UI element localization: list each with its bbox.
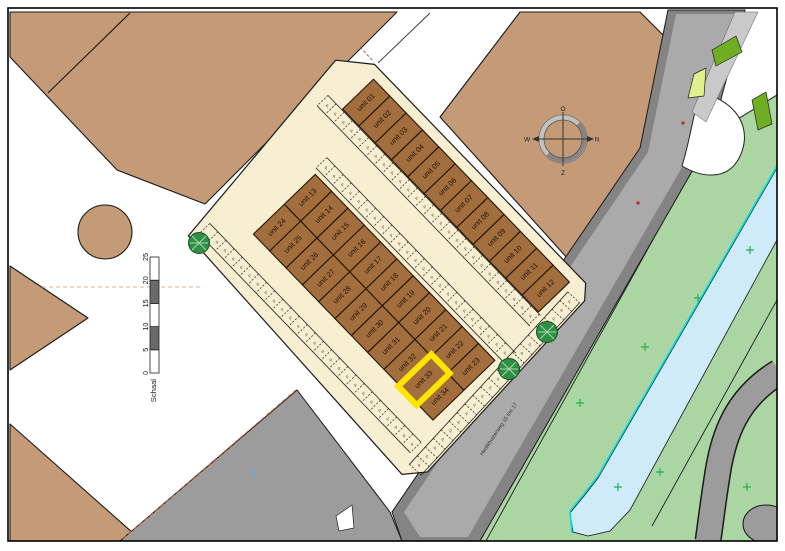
site-plan-map: Hedikhuizerweg 15 t/m 17 PPPPPPPPPPPPPPP…	[0, 0, 785, 551]
compass-letter-top: O	[560, 106, 565, 113]
tree	[189, 233, 210, 254]
scale-tick-label: 25	[141, 253, 150, 261]
scale-bar-segment	[150, 303, 159, 326]
scale-tick-label: 20	[141, 276, 150, 284]
site-plan-page: Hedikhuizerweg 15 t/m 17 PPPPPPPPPPPPPPP…	[0, 0, 785, 551]
tree	[537, 322, 558, 343]
scale-bar-label: Schaal	[149, 379, 158, 403]
scale-bar-segment	[150, 350, 159, 373]
compass-letter-left: W	[524, 136, 531, 143]
compass-letter-bottom: Z	[561, 170, 565, 177]
scale-tick-label: 15	[141, 299, 150, 307]
red-survey-dot	[636, 201, 639, 204]
compass-letter-right: N	[595, 136, 600, 143]
scale-tick-label: 5	[141, 348, 150, 352]
scale-tick-label: 0	[141, 371, 150, 375]
scale-bar-segment	[150, 257, 159, 280]
scale-bar-segment	[150, 280, 159, 303]
red-survey-dot	[681, 121, 684, 124]
silo-tank	[78, 205, 132, 259]
scale-bar-segment	[150, 327, 159, 350]
tree	[499, 359, 520, 380]
scale-tick-label: 10	[141, 323, 150, 331]
